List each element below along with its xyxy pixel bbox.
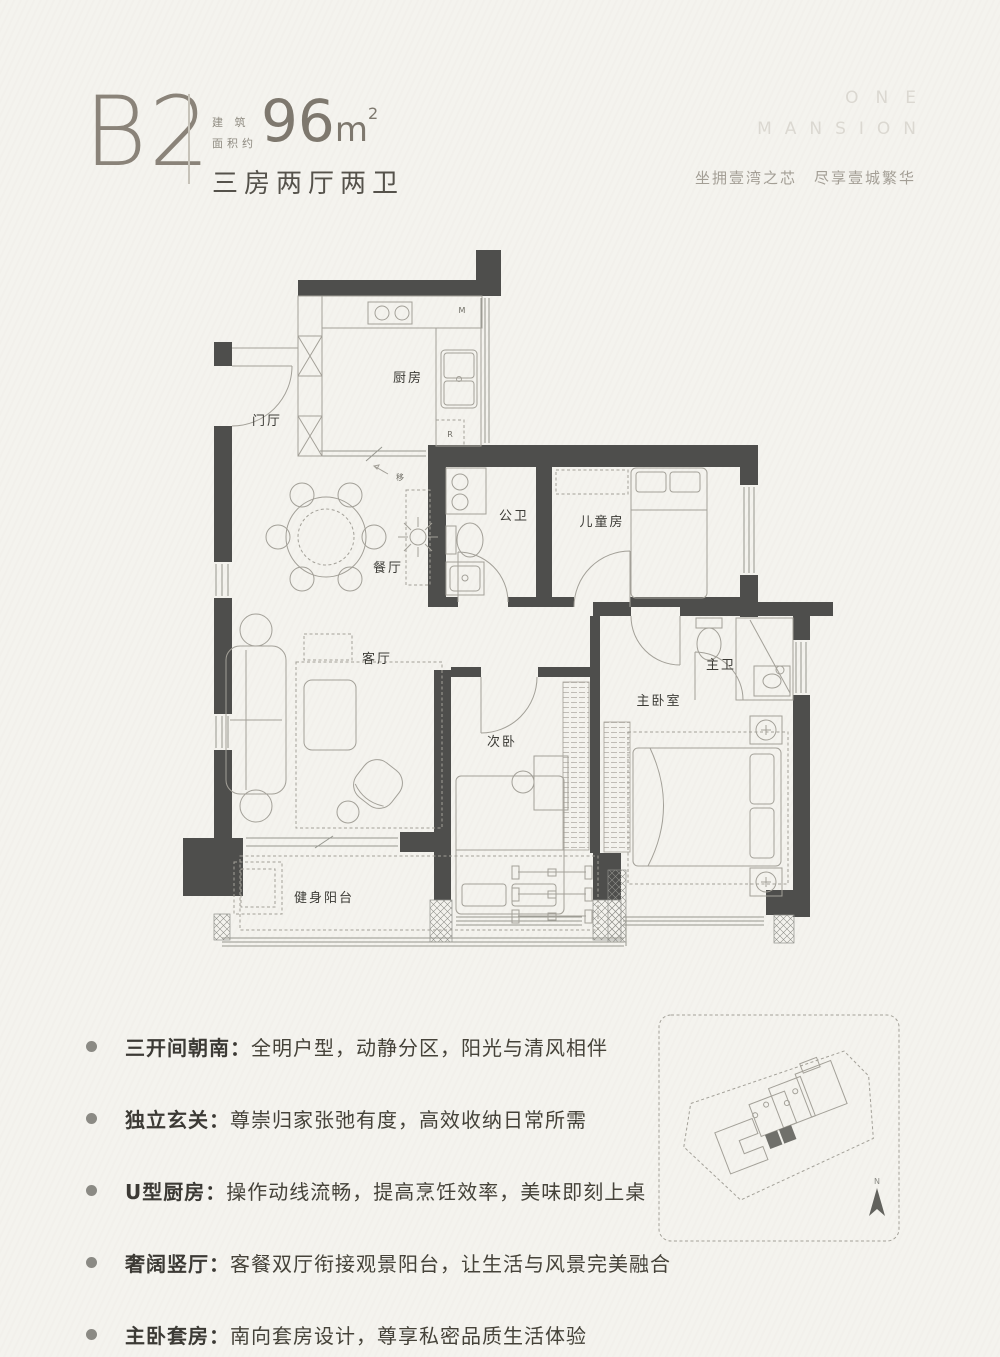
bullet-icon xyxy=(86,1329,97,1340)
living-furniture xyxy=(226,614,442,828)
site-buildings xyxy=(670,1040,894,1212)
feature-item: 三开间朝南： 全明户型，动静分区，阳光与清风相伴 xyxy=(86,1033,671,1059)
svg-text:N: N xyxy=(874,1177,880,1186)
feature-title: 三开间朝南： xyxy=(125,1032,251,1061)
feature-title: U型厨房： xyxy=(125,1176,226,1205)
feature-title: 独立玄关： xyxy=(125,1104,230,1133)
highlighted-unit xyxy=(779,1125,797,1144)
area-prefix: 建 筑 面积约 xyxy=(212,114,257,151)
header-divider xyxy=(188,94,190,184)
room-label-master-bedroom: 主卧室 xyxy=(636,693,681,709)
wall-piers xyxy=(214,870,794,943)
feature-desc: 尊崇归家张弛有度，高效收纳日常所需 xyxy=(230,1104,587,1133)
fridge-label: R xyxy=(447,430,453,439)
room-label-fitness-balcony: 健身阳台 xyxy=(294,890,354,906)
feature-desc: 南向套房设计，尊享私密品质生活体验 xyxy=(230,1320,587,1349)
floor-plan: M R 移 xyxy=(178,250,838,962)
brand-line2: MANSION xyxy=(695,119,929,139)
feature-item: 主卧套房： 南向套房设计，尊享私密品质生活体验 xyxy=(86,1321,671,1347)
highlighted-unit xyxy=(765,1130,783,1149)
bullet-icon xyxy=(86,1257,97,1268)
windows xyxy=(216,298,806,946)
feature-item: 独立玄关： 尊崇归家张弛有度，高效收纳日常所需 xyxy=(86,1105,671,1131)
layout-description: 三房两厅两卫 xyxy=(212,163,404,200)
feature-desc: 全明户型，动静分区，阳光与清风相伴 xyxy=(251,1032,608,1061)
guest-bath-fixtures xyxy=(446,468,486,595)
bullet-icon xyxy=(86,1041,97,1052)
feature-desc: 客餐双厅衔接观景阳台，让生活与风景完美融合 xyxy=(230,1248,671,1277)
bullet-icon xyxy=(86,1185,97,1196)
kitchen-fixtures xyxy=(298,296,482,456)
feature-list: 三开间朝南： 全明户型，动静分区，阳光与清风相伴 独立玄关： 尊崇归家张弛有度，… xyxy=(86,1033,671,1357)
bullet-icon xyxy=(86,1113,97,1124)
north-arrow-icon: N xyxy=(869,1177,885,1216)
doors xyxy=(232,348,743,733)
area-prefix-line1: 建 筑 xyxy=(212,114,257,130)
feature-title: 主卧套房： xyxy=(125,1320,230,1349)
room-label-kitchen: 厨房 xyxy=(393,370,423,386)
area-value: 96m2 xyxy=(261,92,378,150)
room-label-dining: 餐厅 xyxy=(373,560,403,576)
brand-tagline: 坐拥壹湾之芯 尽享壹城繁华 xyxy=(695,167,916,188)
area-prefix-line2: 面积约 xyxy=(212,135,257,151)
sliding-door-annotation: 移 xyxy=(374,465,404,482)
area-block: 建 筑 面积约 96m2 三房两厅两卫 xyxy=(212,92,404,200)
brand-block: ONE MANSION 坐拥壹湾之芯 尽享壹城繁华 xyxy=(695,88,916,188)
svg-text:移: 移 xyxy=(396,472,404,482)
brochure-page: B2 建 筑 面积约 96m2 三房两厅两卫 ONE MANSION 坐拥壹湾之… xyxy=(0,0,1000,1357)
room-label-kids-room: 儿童房 xyxy=(579,514,624,530)
plan-code: B2 xyxy=(84,84,212,180)
fitness-balcony-equipment xyxy=(234,856,598,930)
room-label-guest-bath: 公卫 xyxy=(499,509,529,524)
kids-room-furniture xyxy=(556,468,707,598)
feature-title: 奢阔竖厅： xyxy=(125,1248,230,1277)
feature-item: U型厨房： 操作动线流畅，提高烹饪效率，美味即刻上桌 xyxy=(86,1177,671,1203)
walls xyxy=(183,250,833,917)
room-label-second-bedroom: 次卧 xyxy=(487,734,517,750)
room-label-entry: 门厅 xyxy=(252,414,282,429)
site-key-plan: N xyxy=(656,1012,902,1248)
dining-table xyxy=(266,483,386,591)
brand-line1: ONE xyxy=(695,88,933,108)
feature-desc: 操作动线流畅，提高烹饪效率，美味即刻上桌 xyxy=(226,1176,646,1205)
appliance-label: M xyxy=(459,306,466,315)
feature-item: 奢阔竖厅： 客餐双厅衔接观景阳台，让生活与风景完美融合 xyxy=(86,1249,671,1275)
room-label-living: 客厅 xyxy=(362,651,392,667)
room-label-master-bath: 主卫 xyxy=(706,658,736,673)
